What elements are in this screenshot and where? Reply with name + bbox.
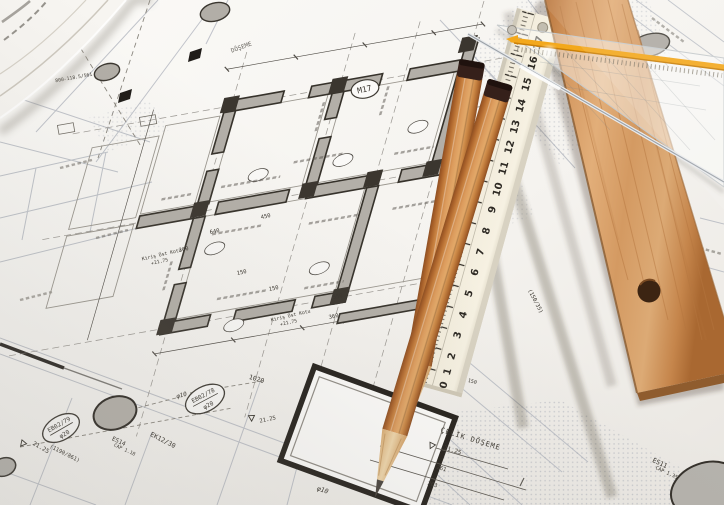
scene-canvas: M17 ÇELİK DÖŞEME DÖŞEME 21.25 21.25 21.2… <box>0 0 724 505</box>
set-square-screw <box>508 26 517 35</box>
blueprint-photo: M17 ÇELİK DÖŞEME DÖŞEME 21.25 21.25 21.2… <box>0 0 724 505</box>
